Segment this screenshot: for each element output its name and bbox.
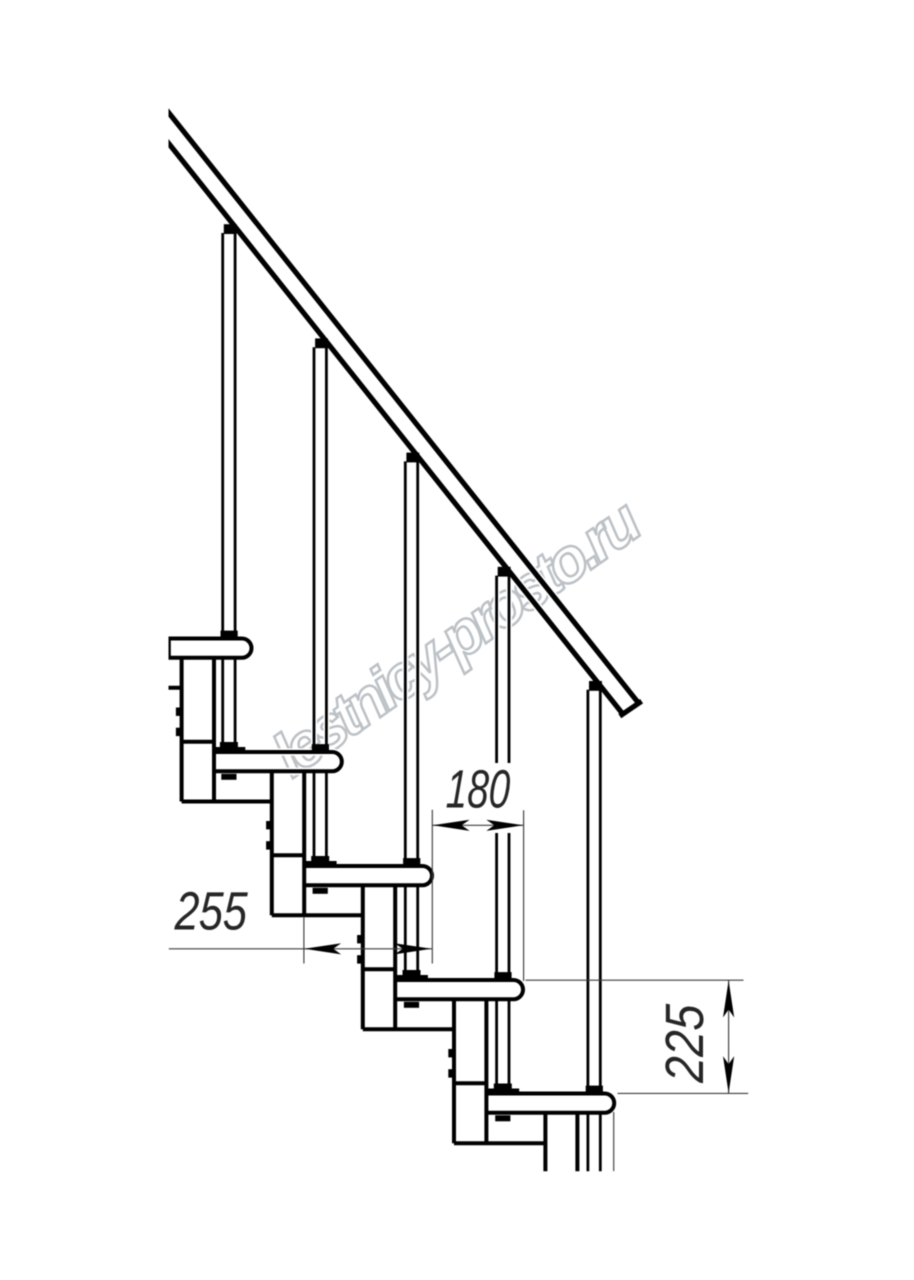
svg-text:255: 255 [173,882,249,942]
svg-text:180: 180 [445,759,511,819]
svg-text:225: 225 [654,1003,715,1085]
